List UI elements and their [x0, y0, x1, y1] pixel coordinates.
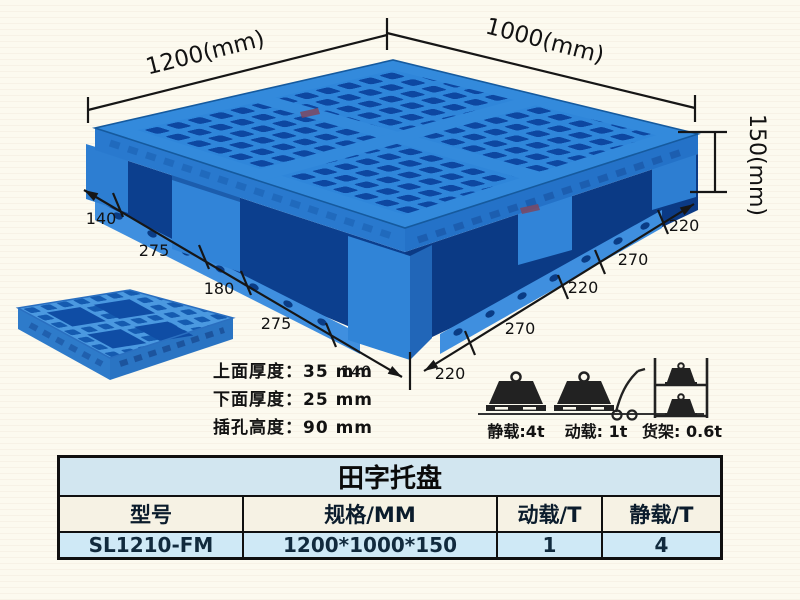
static-load-label: 静载:4t — [487, 422, 545, 441]
table-cell-spec: 1200*1000*150 — [244, 533, 498, 557]
pallet-datasheet: 1200(mm) 1000(mm) 150(mm) 140 275 180 27… — [0, 0, 800, 600]
spec-line-2: 插孔高度：90 mm — [213, 417, 373, 438]
table-cell-model: SL1210-FM — [60, 533, 244, 557]
table-header-spec: 规格/MM — [244, 497, 498, 533]
spec-line-0: 上面厚度：35 mm — [213, 361, 373, 382]
dim-height-label: 150(mm) — [744, 114, 769, 216]
table-title: 田字托盘 — [60, 458, 720, 497]
dynamic-load-icon — [554, 369, 645, 420]
dim-left-0: 140 — [86, 209, 117, 228]
dim-right-0: 220 — [669, 216, 700, 235]
dim-right-2: 220 — [568, 278, 599, 297]
dim-left-2: 180 — [204, 279, 235, 298]
table-header-model: 型号 — [60, 497, 244, 533]
spec-table: 田字托盘 型号 规格/MM 动载/T 静载/T SL1210-FM 1200*1… — [57, 455, 723, 560]
dim-right-1: 270 — [618, 250, 649, 269]
table-cell-dynamic-load: 1 — [498, 533, 603, 557]
dim-width-label: 1200(mm) — [143, 26, 267, 81]
thickness-specs: 上面厚度：35 mm 下面厚度：25 mm 插孔高度：90 mm — [213, 361, 373, 438]
load-capacity-icons: 静载:4t 动载: 1t 货架: 0.6t — [478, 358, 722, 441]
dim-right-3: 270 — [505, 319, 536, 338]
table-header-static-load: 静载/T — [603, 497, 720, 533]
dim-left-1: 275 — [139, 241, 170, 260]
dynamic-load-label: 动载: 1t — [565, 422, 628, 441]
small-pallet-illustration — [18, 290, 233, 380]
table-cell-static-load: 4 — [603, 533, 720, 557]
spec-line-1: 下面厚度：25 mm — [213, 389, 373, 410]
pallet-diagram: 1200(mm) 1000(mm) 150(mm) 140 275 180 27… — [0, 0, 800, 452]
dim-right-4: 220 — [435, 364, 466, 383]
rack-load-label: 货架: 0.6t — [642, 422, 722, 441]
static-load-icon — [486, 373, 546, 412]
table-header-dynamic-load: 动载/T — [498, 497, 603, 533]
dim-left-3: 275 — [261, 314, 292, 333]
rack-load-icon — [655, 358, 707, 418]
